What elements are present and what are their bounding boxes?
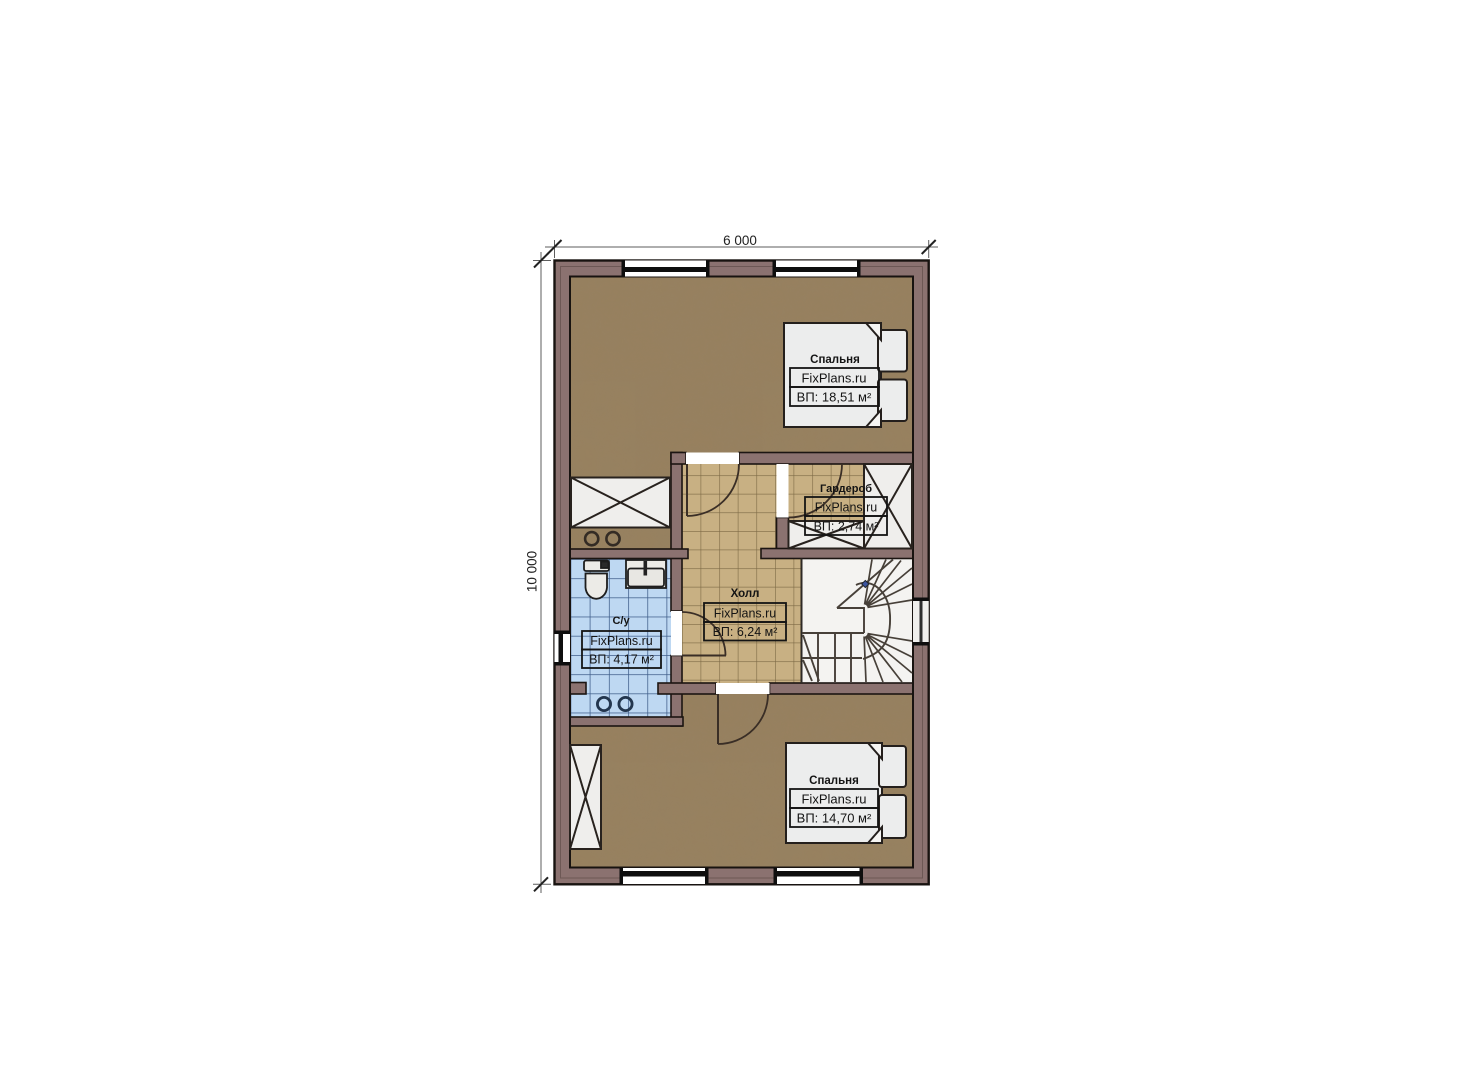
svg-text:Холл: Холл bbox=[731, 588, 760, 600]
svg-text:ВП: 6,24 м²: ВП: 6,24 м² bbox=[713, 625, 778, 639]
svg-text:Спальня: Спальня bbox=[809, 775, 859, 787]
svg-text:ВП: 18,51 м²: ВП: 18,51 м² bbox=[797, 390, 872, 405]
svg-text:FixPlans.ru: FixPlans.ru bbox=[801, 792, 866, 807]
svg-text:FixPlans.ru: FixPlans.ru bbox=[801, 371, 866, 386]
svg-text:6 000: 6 000 bbox=[723, 233, 757, 248]
svg-text:Гардероб: Гардероб bbox=[820, 483, 872, 495]
svg-text:ВП: 2,74 м²: ВП: 2,74 м² bbox=[814, 520, 879, 534]
svg-text:FixPlans.ru: FixPlans.ru bbox=[714, 607, 777, 621]
svg-text:FixPlans.ru: FixPlans.ru bbox=[815, 501, 878, 515]
svg-text:ВП: 4,17 м²: ВП: 4,17 м² bbox=[589, 653, 654, 667]
svg-text:10 000: 10 000 bbox=[525, 551, 540, 592]
svg-text:FixPlans.ru: FixPlans.ru bbox=[590, 634, 653, 648]
svg-text:ВП: 14,70 м²: ВП: 14,70 м² bbox=[797, 811, 872, 826]
svg-text:С/у: С/у bbox=[612, 615, 630, 627]
svg-text:Спальня: Спальня bbox=[810, 354, 860, 366]
